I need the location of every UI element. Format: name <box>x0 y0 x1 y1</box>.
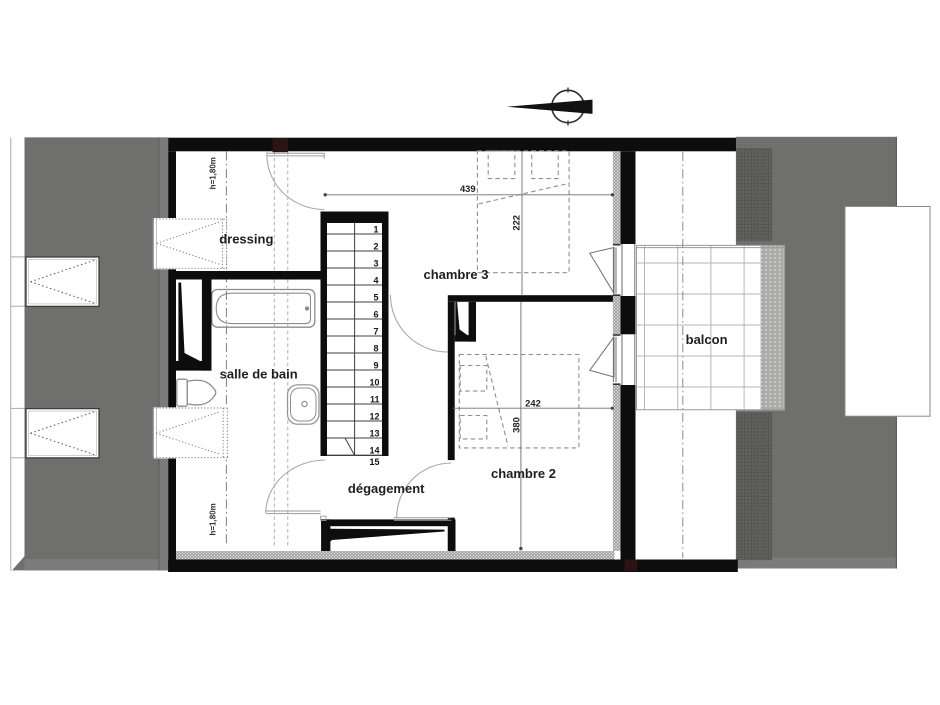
svg-text:h=1,80m: h=1,80m <box>208 503 217 535</box>
svg-text:15: 15 <box>369 457 379 467</box>
svg-text:7: 7 <box>373 326 378 336</box>
svg-text:10: 10 <box>369 377 379 387</box>
svg-text:chambre 2: chambre 2 <box>491 466 556 481</box>
svg-text:6: 6 <box>373 309 378 319</box>
svg-text:14: 14 <box>369 445 379 455</box>
svg-text:222: 222 <box>510 215 521 231</box>
svg-text:13: 13 <box>369 428 379 438</box>
svg-text:balcon: balcon <box>686 332 728 347</box>
svg-text:439: 439 <box>460 183 476 194</box>
svg-text:9: 9 <box>373 360 378 370</box>
svg-text:1: 1 <box>373 224 378 234</box>
svg-text:chambre 3: chambre 3 <box>423 267 488 282</box>
svg-text:3: 3 <box>373 258 378 268</box>
svg-text:5: 5 <box>373 292 378 302</box>
svg-text:242: 242 <box>525 397 541 408</box>
svg-text:4: 4 <box>373 275 378 285</box>
svg-text:380: 380 <box>510 417 521 433</box>
svg-text:11: 11 <box>370 394 380 404</box>
svg-text:12: 12 <box>369 411 379 421</box>
svg-text:dressing: dressing <box>219 231 273 246</box>
svg-text:2: 2 <box>373 241 378 251</box>
svg-text:salle de bain: salle de bain <box>220 366 298 381</box>
svg-text:dégagement: dégagement <box>348 481 425 496</box>
svg-text:8: 8 <box>373 343 378 353</box>
svg-text:h=1,80m: h=1,80m <box>208 157 217 189</box>
